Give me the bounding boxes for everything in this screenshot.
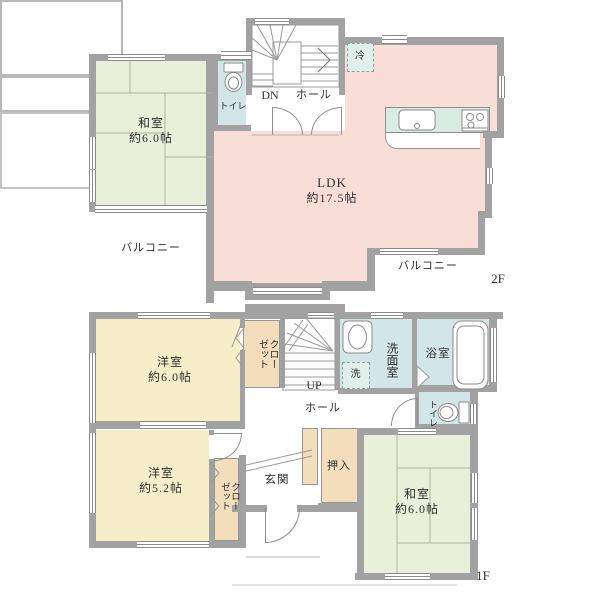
room-name: 和室 (111, 116, 191, 131)
stairs-dn-label: DN (254, 88, 286, 103)
kitchen-counter-base (385, 133, 480, 149)
room-label-western52: 洋室 約5.2帖 (121, 466, 201, 496)
floorplan: 冷 和室 約6.0帖 トイレ DN ホール LDK 約17.5帖 バルコニー バ… (0, 0, 600, 600)
room-label-toilet-1f: トイレ (421, 396, 437, 430)
room-label-hall-1f: ホール (298, 402, 348, 416)
window (89, 473, 96, 513)
window (255, 18, 289, 25)
window (89, 170, 96, 202)
fridge-space: 冷 (347, 43, 374, 72)
door-arc (272, 107, 303, 135)
room-size: 約17.5帖 (292, 191, 372, 206)
wall (209, 459, 214, 541)
shoe-cabinet (302, 428, 318, 485)
floor-label-2f: 2F (485, 271, 511, 287)
window (382, 35, 407, 44)
closet-south-label: クローゼット (216, 479, 238, 513)
oshiire-label: 押入 (317, 460, 361, 474)
wall (318, 503, 364, 510)
room-label-washitsu-1f: 和室 約6.0帖 (377, 487, 457, 517)
window (498, 76, 505, 98)
window (380, 248, 438, 255)
room-size: 約6.0帖 (377, 502, 457, 517)
room-size: 約5.2帖 (121, 481, 201, 496)
room-toilet-2f (218, 60, 246, 125)
room-name: 和室 (377, 487, 457, 502)
room-label-entrance: 玄関 (255, 473, 299, 487)
staircase-2f (252, 25, 339, 87)
window (89, 353, 96, 388)
window (490, 355, 497, 382)
closet-north-label: クローゼット (247, 336, 277, 372)
wall (245, 304, 345, 312)
room-size: 約6.0帖 (130, 370, 210, 385)
stair-direction-arrow (318, 48, 330, 72)
window (490, 328, 497, 355)
room-size: 約6.0帖 (111, 131, 191, 146)
wall (239, 455, 246, 548)
window (385, 573, 430, 580)
room-label-washitsu-2f: 和室 約6.0帖 (111, 116, 191, 146)
window (108, 54, 165, 61)
room-name: 洋室 (121, 466, 201, 481)
door-arc (214, 433, 242, 461)
wall (213, 125, 251, 131)
room-label-western6: 洋室 約6.0帖 (130, 355, 210, 385)
kitchen-counter (385, 107, 490, 133)
room-label-toilet-2f: トイレ (215, 101, 251, 112)
window (138, 312, 210, 319)
wall (339, 18, 345, 95)
window (137, 541, 209, 548)
room-label-washroom: 洗面室 (378, 333, 398, 387)
wall (280, 318, 285, 388)
window (470, 404, 477, 424)
wall (413, 385, 497, 392)
laundry-space: 洗 (342, 362, 370, 389)
stairs-up-label: UP (296, 378, 332, 393)
wall (213, 60, 218, 125)
wall (240, 318, 245, 328)
window (471, 508, 478, 540)
room-label-hall-2f: ホール (288, 89, 340, 103)
fridge-label: 冷 (355, 51, 366, 64)
laundry-label: 洗 (351, 369, 362, 382)
door-arc (311, 107, 342, 135)
floor-label-1f: 1F (470, 568, 496, 584)
window (471, 473, 478, 503)
window (89, 388, 96, 423)
window (89, 433, 96, 473)
window (221, 51, 251, 60)
window (371, 312, 403, 319)
door-arc-entrance (265, 508, 300, 543)
window (308, 312, 334, 319)
room-ldk-south (214, 248, 367, 283)
window (89, 137, 96, 169)
room-label-bath: 浴室 (413, 347, 463, 361)
room-name: 洋室 (130, 355, 210, 370)
window (253, 287, 322, 295)
wall (335, 318, 340, 390)
room-name: LDK (292, 175, 372, 191)
window (95, 205, 207, 213)
room-label-balcony-left: バルコニー (101, 242, 201, 256)
window (140, 421, 206, 429)
room-label-ldk: LDK 約17.5帖 (292, 175, 372, 206)
window (486, 168, 493, 184)
room-label-balcony-right: バルコニー (371, 260, 485, 274)
door-arc (391, 398, 418, 426)
wall (240, 350, 245, 421)
